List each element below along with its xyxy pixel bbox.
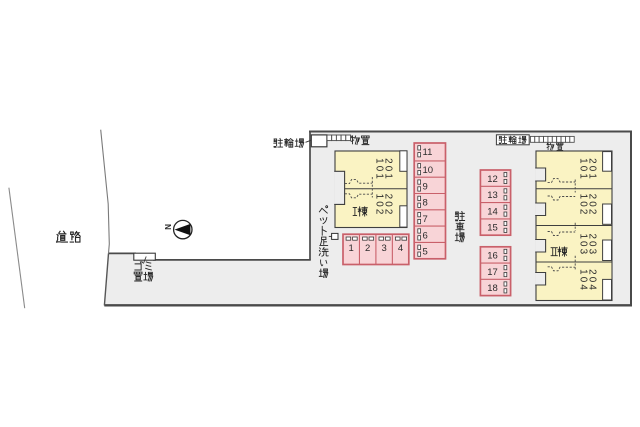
svg-text:1: 1 — [578, 158, 589, 164]
svg-text:5: 5 — [423, 247, 428, 258]
svg-text:17: 17 — [487, 267, 498, 278]
svg-text:2: 2 — [578, 209, 589, 215]
svg-text:8: 8 — [423, 198, 428, 209]
svg-text:0: 0 — [578, 277, 589, 283]
svg-text:14: 14 — [487, 206, 498, 217]
svg-text:9: 9 — [423, 181, 428, 192]
svg-text:2: 2 — [374, 209, 385, 215]
svg-text:0: 0 — [374, 166, 385, 172]
svg-text:11: 11 — [423, 147, 433, 158]
svg-text:1: 1 — [578, 194, 589, 200]
svg-text:0: 0 — [374, 201, 385, 207]
svg-text:12: 12 — [487, 174, 498, 185]
svg-text:0: 0 — [578, 166, 589, 172]
svg-text:16: 16 — [487, 251, 498, 262]
svg-text:0: 0 — [578, 201, 589, 207]
svg-text:15: 15 — [487, 223, 498, 234]
svg-text:1: 1 — [374, 158, 385, 164]
svg-text:13: 13 — [487, 190, 498, 201]
svg-text:N: N — [163, 224, 172, 230]
svg-text:4: 4 — [398, 243, 403, 254]
svg-text:6: 6 — [423, 230, 428, 241]
svg-text:2: 2 — [365, 243, 370, 254]
svg-text:1: 1 — [578, 173, 589, 179]
svg-text:4: 4 — [578, 284, 589, 290]
svg-text:1: 1 — [349, 243, 354, 254]
svg-text:18: 18 — [487, 283, 498, 294]
svg-text:1: 1 — [578, 233, 589, 239]
svg-text:10: 10 — [423, 165, 434, 176]
svg-text:3: 3 — [578, 249, 589, 255]
svg-text:1: 1 — [374, 173, 385, 179]
svg-text:7: 7 — [423, 214, 428, 225]
svg-text:1: 1 — [578, 269, 589, 275]
svg-text:0: 0 — [578, 241, 589, 247]
svg-text:1: 1 — [374, 194, 385, 200]
svg-text:3: 3 — [381, 243, 386, 254]
